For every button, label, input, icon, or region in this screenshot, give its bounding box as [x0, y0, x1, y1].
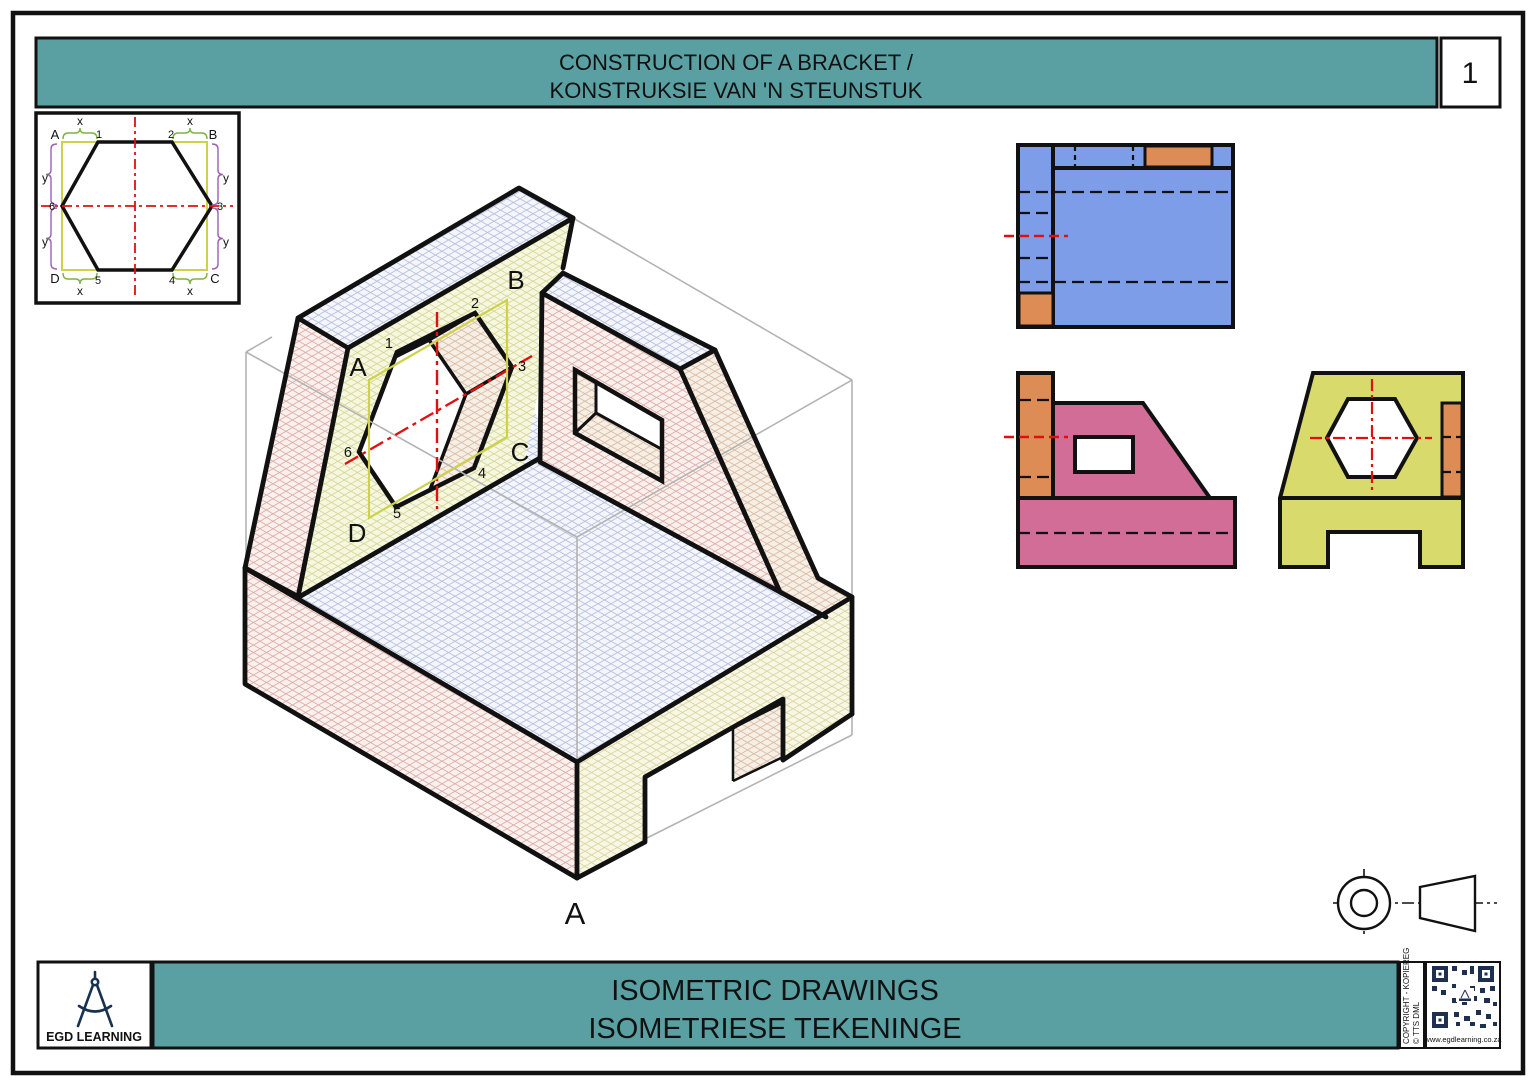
copyright-strip: COPYRIGHT - KOPIEREG © TTS DML: [1400, 948, 1424, 1048]
svg-text:2: 2: [168, 129, 174, 141]
svg-text:x: x: [187, 284, 193, 298]
footer-banner: ISOMETRIC DRAWINGS ISOMETRIESE TEKENINGE: [153, 962, 1398, 1048]
copyright-line1: COPYRIGHT - KOPIEREG: [1402, 948, 1411, 1044]
top-view: [1004, 145, 1233, 327]
svg-text:3: 3: [217, 201, 223, 213]
top-view-orange-block-1: [1145, 146, 1212, 167]
projection-symbol: [1333, 869, 1497, 937]
sheet-canvas: CONSTRUCTION OF A BRACKET / KONSTRUKSIE …: [0, 0, 1536, 1086]
svg-text:1: 1: [96, 129, 102, 141]
front-view: [1004, 373, 1235, 567]
header-banner: CONSTRUCTION OF A BRACKET / KONSTRUKSIE …: [36, 38, 1437, 107]
svg-text:A: A: [51, 127, 60, 142]
isometric-drawing: A B C D 1 2 3 4 5 6 A: [245, 188, 852, 931]
header-title-line2: KONSTRUKSIE VAN 'N STEUNSTUK: [550, 78, 923, 103]
footer-logo-box: EGD LEARNING: [38, 962, 151, 1048]
svg-text:4: 4: [478, 466, 486, 482]
footer-title-line2: ISOMETRIESE TEKENINGE: [588, 1013, 961, 1045]
svg-text:5: 5: [95, 275, 101, 287]
copyright-line2: © TTS DML: [1412, 1001, 1421, 1044]
iso-view-label: A: [565, 896, 586, 931]
svg-text:B: B: [507, 265, 524, 295]
top-view-orange-block-2: [1019, 293, 1053, 326]
hexagon-construction-panel: x x x x y y y y A B C D 1 2 3 4 5 6: [36, 113, 239, 303]
side-view: [1280, 373, 1463, 567]
qr-website: www.egdlearning.co.za: [1423, 1035, 1502, 1044]
svg-text:4: 4: [169, 275, 175, 287]
header-title-line1: CONSTRUCTION OF A BRACKET /: [559, 50, 914, 75]
svg-text:y: y: [42, 235, 48, 249]
logo-text: EGD LEARNING: [46, 1030, 142, 1044]
svg-text:y: y: [42, 171, 48, 185]
side-view-orange-strip: [1442, 403, 1462, 497]
front-view-hole: [1075, 437, 1133, 472]
drawing-sheet: CONSTRUCTION OF A BRACKET / KONSTRUKSIE …: [0, 0, 1536, 1086]
svg-text:C: C: [511, 437, 530, 467]
svg-text:y: y: [223, 171, 229, 185]
svg-text:5: 5: [393, 506, 401, 522]
projection-cone: [1420, 876, 1475, 931]
svg-text:B: B: [209, 127, 218, 142]
svg-text:1: 1: [385, 336, 393, 352]
svg-text:2: 2: [471, 296, 479, 312]
svg-text:x: x: [77, 114, 83, 128]
svg-text:y: y: [223, 235, 229, 249]
svg-text:A: A: [349, 352, 367, 382]
svg-text:C: C: [210, 271, 219, 286]
svg-text:x: x: [77, 284, 83, 298]
svg-text:x: x: [187, 114, 193, 128]
svg-text:3: 3: [518, 359, 526, 375]
page-number-box: 1: [1441, 38, 1500, 107]
front-view-orange-column: [1018, 373, 1053, 498]
page-number: 1: [1462, 57, 1479, 90]
footer-title-line1: ISOMETRIC DRAWINGS: [611, 975, 939, 1007]
svg-text:D: D: [348, 518, 367, 548]
svg-text:6: 6: [344, 445, 352, 461]
svg-text:D: D: [50, 271, 59, 286]
svg-text:6: 6: [49, 201, 55, 213]
qr-box: www.egdlearning.co.za: [1423, 962, 1502, 1048]
